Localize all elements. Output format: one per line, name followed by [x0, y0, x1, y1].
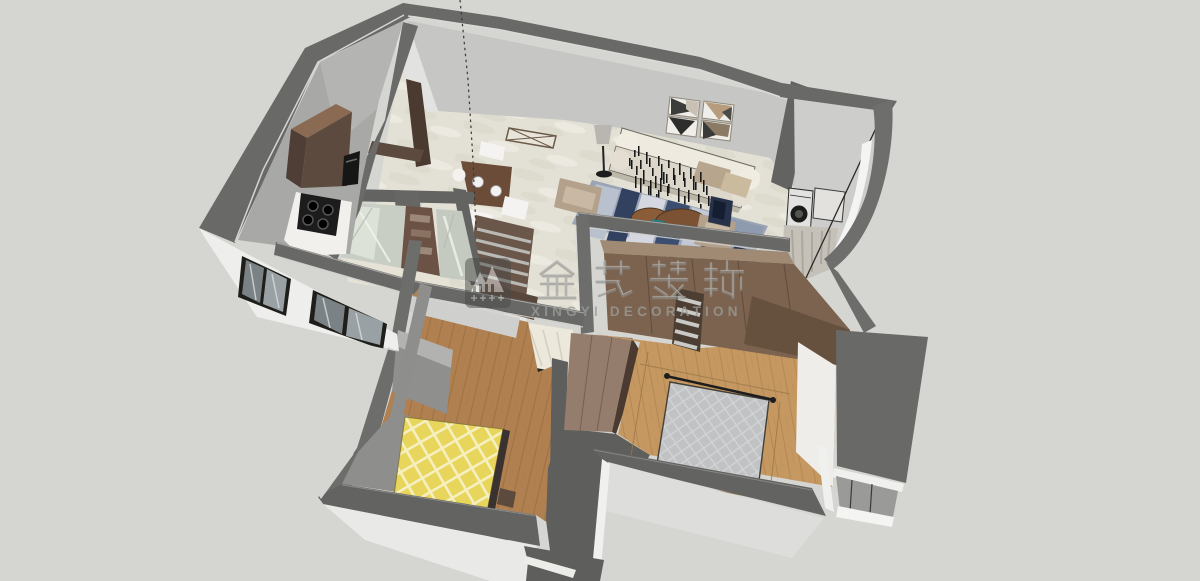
svg-text:XINGYI DECORATION: XINGYI DECORATION: [531, 304, 742, 319]
